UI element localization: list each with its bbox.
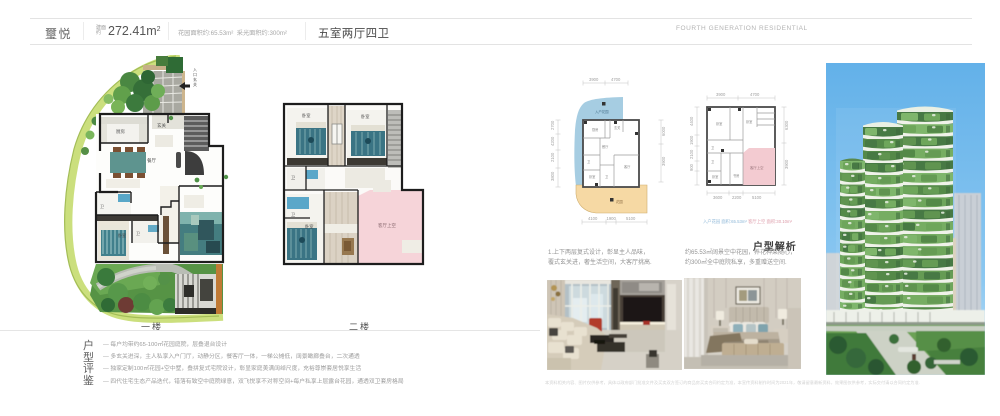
svg-text:900: 900 <box>689 163 694 171</box>
svg-text:2100: 2100 <box>550 152 555 162</box>
svg-text:花园: 花园 <box>616 199 623 204</box>
svg-text:6300: 6300 <box>784 120 789 130</box>
svg-text:3900: 3900 <box>784 159 789 169</box>
svg-text:厨房: 厨房 <box>116 128 125 135</box>
svg-text:3600: 3600 <box>713 195 723 200</box>
svg-text:卫: 卫 <box>291 175 295 180</box>
svg-text:3800: 3800 <box>550 171 555 181</box>
svg-text:客厅: 客厅 <box>624 164 631 169</box>
svg-text:卧室: 卧室 <box>302 112 310 119</box>
svg-text:卫: 卫 <box>136 231 140 236</box>
svg-text:4200: 4200 <box>550 136 555 146</box>
svg-text:卧室: 卧室 <box>716 121 722 126</box>
svg-text:4700: 4700 <box>750 92 760 97</box>
svg-text:5100: 5100 <box>752 195 762 200</box>
svg-text:餐厅: 餐厅 <box>147 157 156 164</box>
svg-text:玄关: 玄关 <box>157 122 166 129</box>
svg-text:4400: 4400 <box>689 116 694 126</box>
svg-text:3900: 3900 <box>589 77 599 82</box>
svg-text:1900: 1900 <box>607 216 617 221</box>
svg-text:卧室: 卧室 <box>305 223 313 230</box>
svg-text:客厅上空: 客厅上空 <box>378 222 396 229</box>
svg-text:5100: 5100 <box>626 216 636 221</box>
svg-text:2200: 2200 <box>732 195 742 200</box>
svg-text:4700: 4700 <box>611 77 621 82</box>
svg-text:卧室: 卧室 <box>361 113 369 120</box>
svg-text:卫: 卫 <box>291 212 295 217</box>
svg-text:卫: 卫 <box>100 204 104 209</box>
svg-text:厨房: 厨房 <box>592 127 598 132</box>
svg-text:卧室: 卧室 <box>746 119 752 124</box>
svg-text:客厅上空: 客厅上空 <box>750 165 764 170</box>
svg-text:卧室: 卧室 <box>118 232 126 238</box>
svg-text:1900: 1900 <box>689 135 694 145</box>
svg-text:3900: 3900 <box>661 156 666 166</box>
svg-text:卧室: 卧室 <box>712 174 718 179</box>
svg-text:书房: 书房 <box>733 173 739 178</box>
svg-text:玄关: 玄关 <box>614 125 621 130</box>
svg-text:餐厅: 餐厅 <box>602 144 609 149</box>
svg-text:2100: 2100 <box>689 149 694 159</box>
svg-text:2700: 2700 <box>550 120 555 130</box>
svg-text:6000: 6000 <box>661 126 666 136</box>
svg-text:关: 关 <box>193 81 197 87</box>
svg-text:4100: 4100 <box>588 216 598 221</box>
svg-text:卧室: 卧室 <box>589 174 595 179</box>
svg-text:3900: 3900 <box>716 92 726 97</box>
svg-text:入户花园: 入户花园 <box>595 109 609 114</box>
